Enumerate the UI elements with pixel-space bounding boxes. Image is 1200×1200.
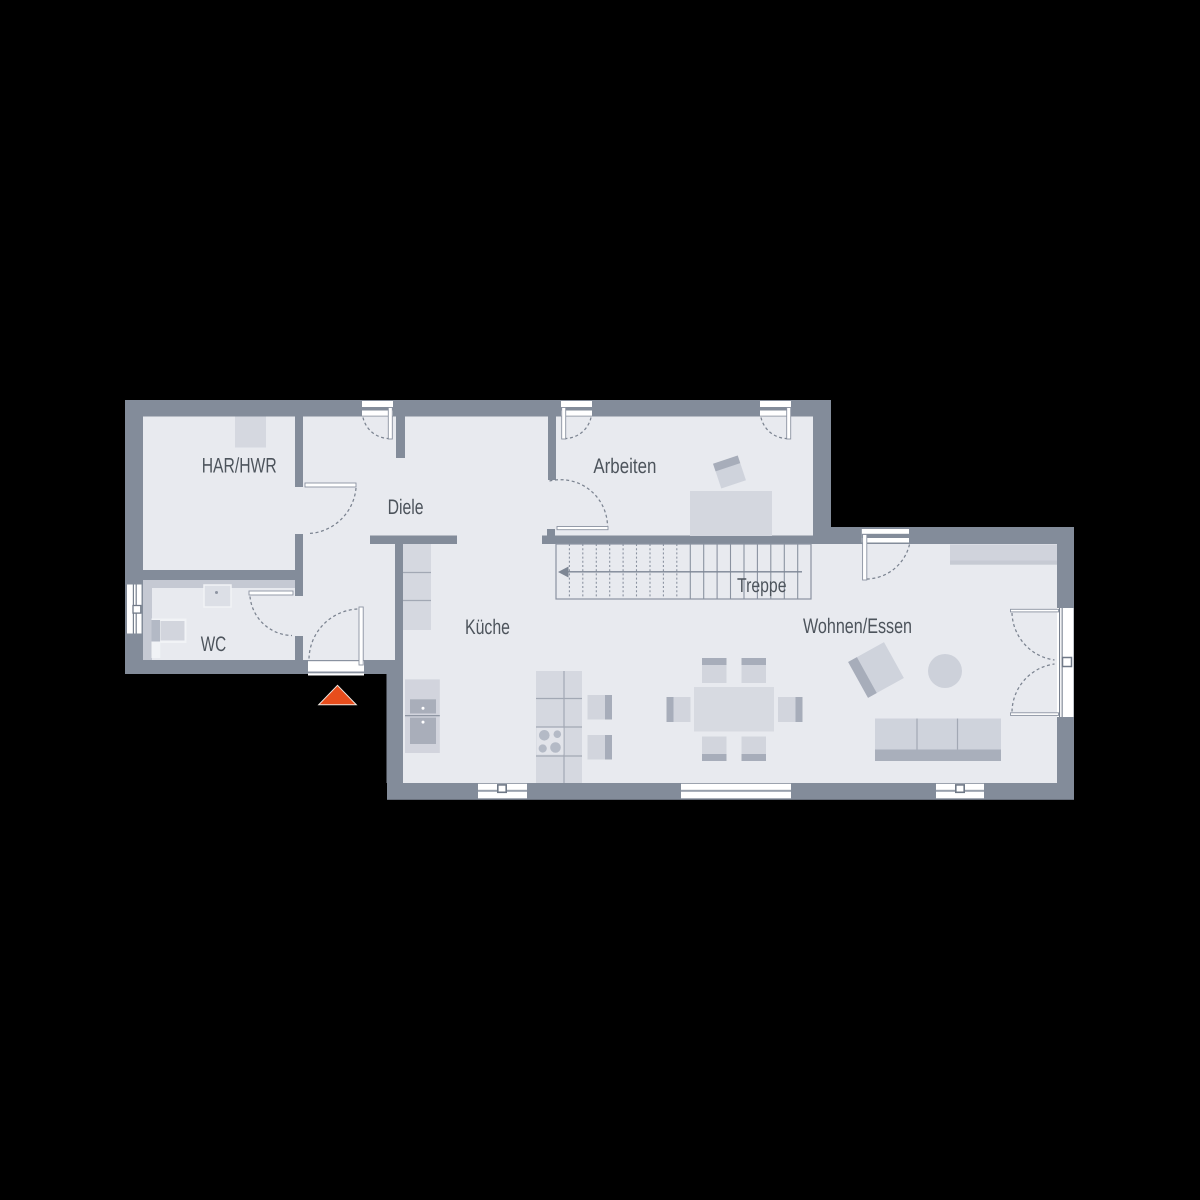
svg-text:Treppe: Treppe (737, 575, 787, 597)
svg-text:Wohnen/Essen: Wohnen/Essen (803, 615, 912, 638)
svg-text:HAR/HWR: HAR/HWR (202, 455, 277, 478)
svg-text:Arbeiten: Arbeiten (593, 455, 656, 478)
svg-text:WC: WC (201, 633, 227, 656)
svg-text:Diele: Diele (388, 496, 424, 519)
svg-text:Küche: Küche (465, 616, 510, 639)
